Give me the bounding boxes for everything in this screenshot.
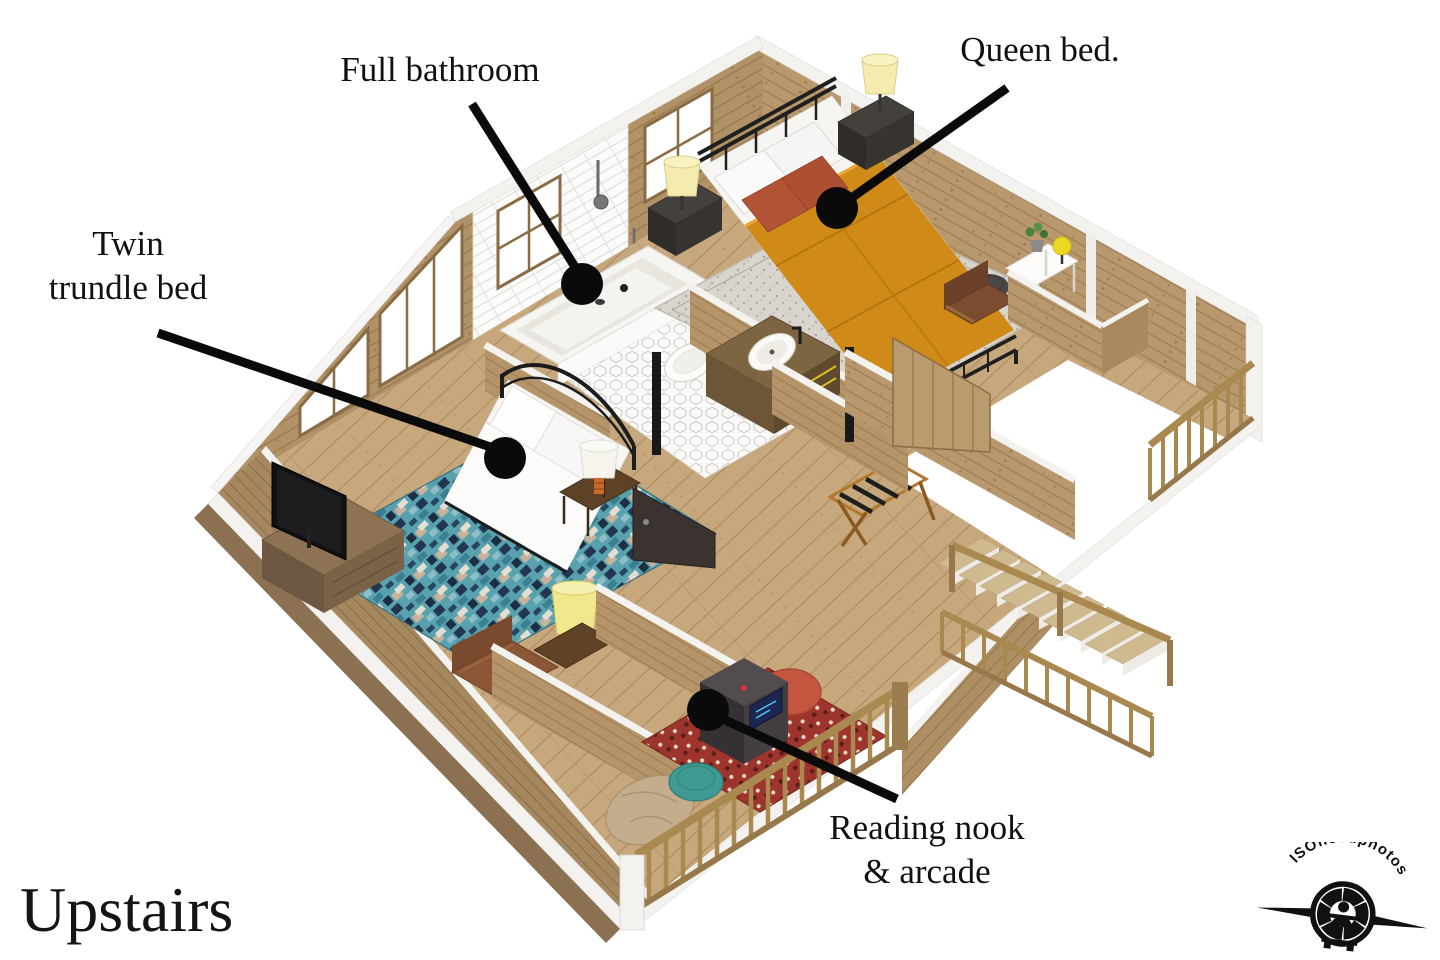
label-twin-trundle-bed: Twin trundle bed bbox=[0, 222, 256, 310]
floor-title: Upstairs bbox=[20, 874, 233, 946]
wall-trim bbox=[1186, 287, 1196, 386]
label-line: Reading nook bbox=[777, 806, 1077, 850]
floor-plan-render bbox=[0, 0, 1440, 960]
svg-text:ISOneedphotos: ISOneedphotos bbox=[1285, 842, 1416, 880]
reading-nook-callout-dot bbox=[687, 689, 729, 731]
newel-post bbox=[892, 682, 908, 750]
watermark-text: ISOneedphotos bbox=[1285, 842, 1416, 880]
twin-bed-callout-dot bbox=[484, 437, 526, 479]
corner-post bbox=[620, 855, 644, 930]
aperture-plane-icon bbox=[1254, 873, 1432, 960]
label-line: Twin bbox=[0, 222, 256, 266]
desk-lamp bbox=[1053, 237, 1071, 255]
full-bathroom-callout-dot bbox=[561, 263, 603, 305]
door-post bbox=[652, 352, 661, 455]
teal-pouf bbox=[669, 763, 723, 801]
label-queen-bed: Queen bed. bbox=[890, 28, 1190, 72]
queen-bed-callout-dot bbox=[816, 187, 858, 229]
floor-plan-page: Full bathroom Queen bed. Twin trundle be… bbox=[0, 0, 1440, 960]
label-reading-nook: Reading nook & arcade bbox=[777, 806, 1077, 894]
label-line: trundle bed bbox=[0, 266, 256, 310]
watermark-logo: ISOneedphotos bbox=[1254, 842, 1432, 960]
label-full-bathroom: Full bathroom bbox=[290, 48, 590, 92]
label-line: & arcade bbox=[777, 850, 1077, 894]
